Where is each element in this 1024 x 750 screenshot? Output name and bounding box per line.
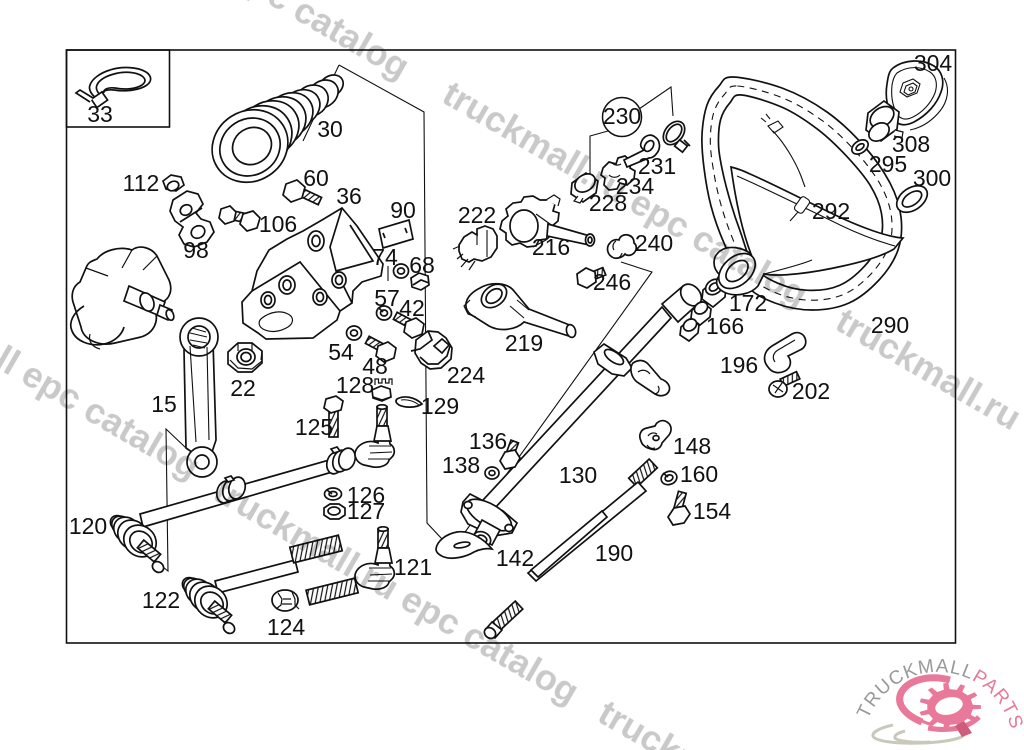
svg-text:33: 33 bbox=[87, 101, 113, 127]
svg-text:124: 124 bbox=[267, 614, 306, 640]
svg-text:57: 57 bbox=[374, 285, 400, 311]
svg-text:196: 196 bbox=[720, 352, 758, 378]
svg-text:142: 142 bbox=[496, 545, 534, 571]
svg-text:106: 106 bbox=[259, 211, 297, 237]
svg-text:68: 68 bbox=[409, 252, 435, 278]
svg-text:54: 54 bbox=[328, 339, 354, 365]
svg-text:129: 129 bbox=[421, 393, 459, 419]
svg-text:36: 36 bbox=[336, 183, 362, 209]
svg-text:112: 112 bbox=[123, 170, 160, 196]
svg-text:148: 148 bbox=[673, 433, 711, 459]
svg-text:74: 74 bbox=[372, 244, 398, 270]
svg-text:292: 292 bbox=[812, 198, 850, 224]
svg-text:231: 231 bbox=[638, 153, 676, 179]
svg-text:125: 125 bbox=[295, 414, 333, 440]
svg-text:300: 300 bbox=[913, 165, 951, 191]
svg-text:22: 22 bbox=[230, 375, 256, 401]
svg-text:160: 160 bbox=[680, 461, 718, 487]
svg-text:138: 138 bbox=[442, 452, 480, 478]
svg-text:15: 15 bbox=[151, 391, 177, 417]
svg-text:246: 246 bbox=[593, 269, 631, 295]
svg-text:224: 224 bbox=[447, 362, 486, 388]
svg-text:127: 127 bbox=[347, 498, 385, 524]
svg-text:30: 30 bbox=[317, 116, 343, 142]
svg-text:98: 98 bbox=[183, 237, 209, 263]
svg-text:230: 230 bbox=[603, 103, 641, 129]
svg-text:120: 120 bbox=[69, 513, 107, 539]
svg-text:128: 128 bbox=[336, 372, 374, 398]
svg-text:222: 222 bbox=[458, 202, 496, 228]
svg-text:136: 136 bbox=[469, 428, 507, 454]
svg-text:166: 166 bbox=[706, 313, 744, 339]
svg-text:90: 90 bbox=[390, 197, 416, 223]
svg-text:154: 154 bbox=[693, 498, 732, 524]
svg-text:202: 202 bbox=[792, 378, 830, 404]
svg-text:216: 216 bbox=[532, 234, 570, 260]
svg-text:304: 304 bbox=[914, 50, 953, 76]
svg-text:308: 308 bbox=[892, 131, 930, 157]
svg-text:122: 122 bbox=[142, 587, 180, 613]
svg-text:60: 60 bbox=[303, 165, 329, 191]
svg-text:42: 42 bbox=[399, 295, 425, 321]
svg-text:190: 190 bbox=[595, 540, 633, 566]
svg-text:130: 130 bbox=[559, 462, 597, 488]
svg-text:219: 219 bbox=[505, 330, 543, 356]
